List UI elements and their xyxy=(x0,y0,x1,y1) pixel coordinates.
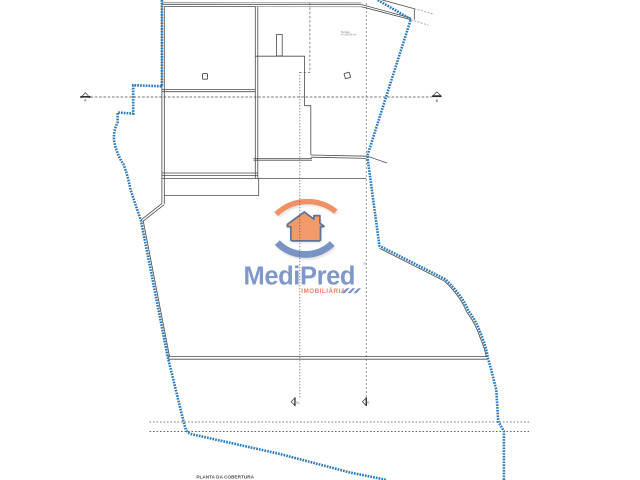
svg-text:IMOBILIÁRIA: IMOBILIÁRIA xyxy=(301,288,346,295)
svg-text:E: E xyxy=(367,400,369,404)
svg-text:MediPred: MediPred xyxy=(244,263,356,291)
svg-text:A = 80.00 m²: A = 80.00 m² xyxy=(341,33,356,37)
svg-text:CL: CL xyxy=(296,400,300,404)
svg-text:PLANTA DA COBERTURA: PLANTA DA COBERTURA xyxy=(196,474,254,479)
